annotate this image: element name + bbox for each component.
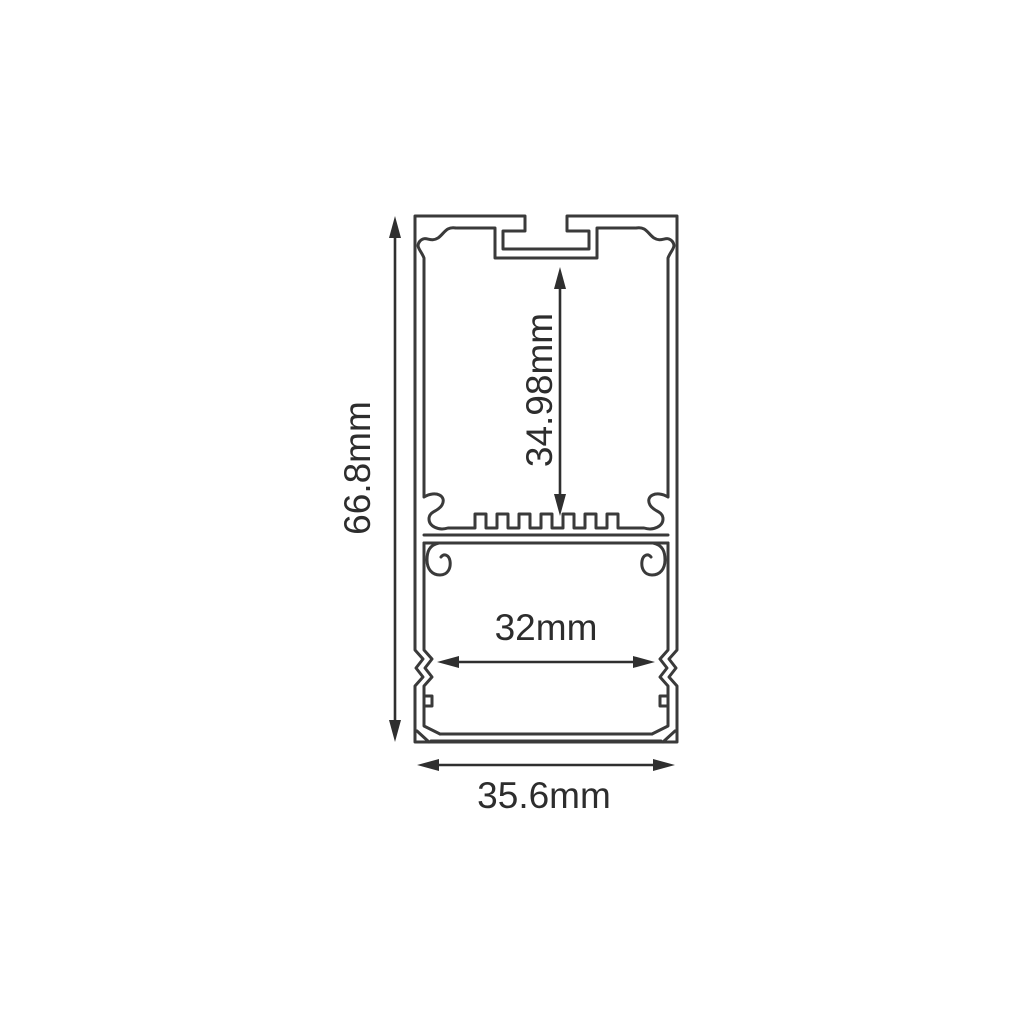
profile-shelf-lines: [424, 535, 668, 543]
profile-tray-floor: [431, 734, 661, 741]
dimension-inner-height: 34.98mm: [519, 267, 566, 516]
arrow-left-icon: [437, 656, 459, 668]
profile-channel-inner: [457, 228, 635, 258]
inner-width-label: 32mm: [495, 607, 598, 648]
arrow-up-icon: [554, 267, 566, 289]
overall-width-label: 35.6mm: [477, 775, 611, 816]
drawing-canvas: 66.8mm 34.98mm 32mm 35.6mm: [0, 0, 1024, 1024]
inner-height-label: 34.98mm: [519, 313, 560, 467]
arrow-down-icon: [389, 720, 401, 742]
arrow-right-icon: [633, 656, 655, 668]
dimension-overall-width: 35.6mm: [417, 759, 675, 816]
arrow-right-icon: [653, 759, 675, 771]
profile-cross-section-drawing: 66.8mm 34.98mm 32mm 35.6mm: [0, 0, 1024, 1024]
overall-height-label: 66.8mm: [337, 401, 378, 535]
arrow-up-icon: [389, 216, 401, 238]
arrow-left-icon: [417, 759, 439, 771]
profile-led-plate-teeth: [460, 514, 632, 528]
dimension-inner-width: 32mm: [437, 607, 655, 668]
dimension-overall-height: 66.8mm: [337, 216, 401, 742]
